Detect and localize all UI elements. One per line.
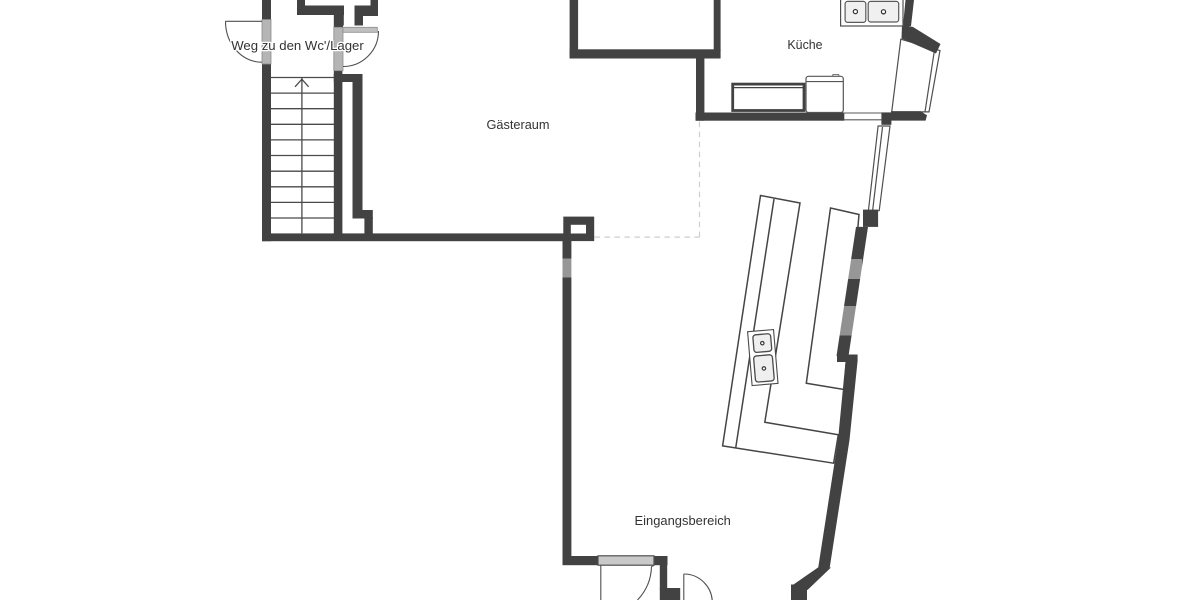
svg-text:Gästeraum: Gästeraum [487, 117, 550, 132]
svg-text:Eingangsbereich: Eingangsbereich [635, 513, 731, 528]
svg-text:Weg zu den Wc'/Lager: Weg zu den Wc'/Lager [231, 38, 364, 53]
svg-text:Küche: Küche [787, 37, 822, 52]
